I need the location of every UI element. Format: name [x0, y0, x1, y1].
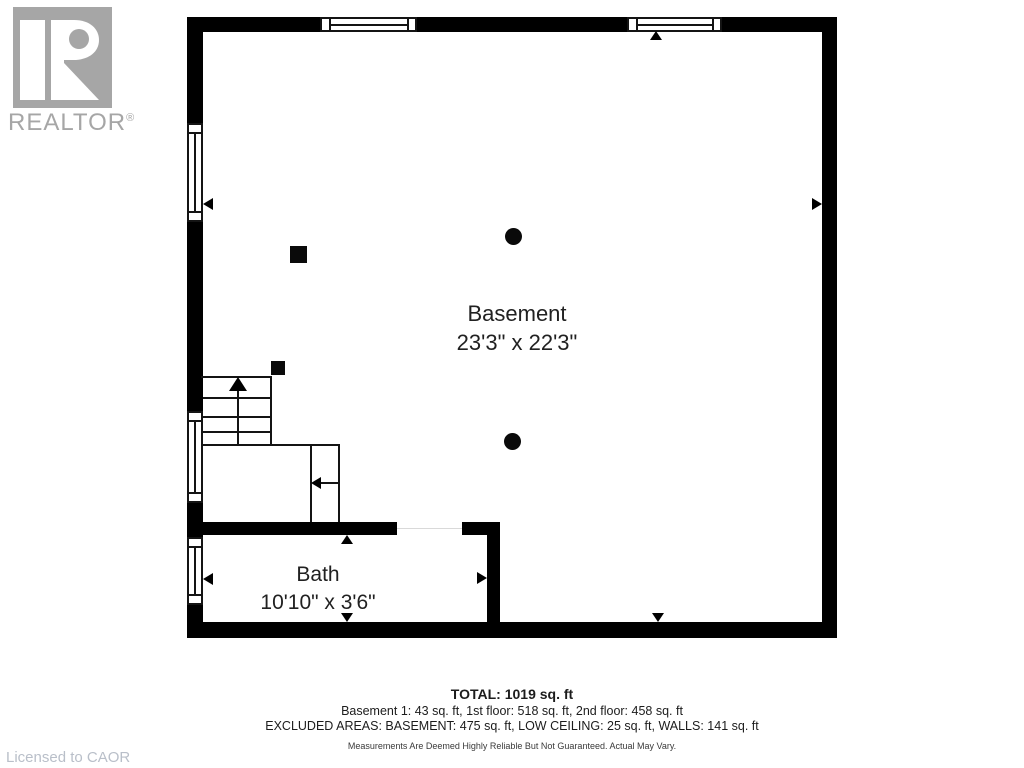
registered-trademark-symbol: ®	[126, 112, 135, 124]
stair-center-line	[237, 389, 239, 446]
total-area-text: TOTAL: 1019 sq. ft	[0, 686, 1024, 702]
landing-edge-top	[201, 444, 340, 446]
realtor-wordmark-text: REALTOR	[8, 109, 126, 136]
license-text: Licensed to CAOR	[6, 749, 130, 766]
dimension-arrow-up	[341, 535, 353, 544]
dimension-arrow-left	[203, 573, 213, 585]
bath-wall-top-left	[187, 522, 397, 535]
dimension-arrow-up	[650, 31, 662, 40]
square-post	[271, 361, 285, 375]
bath-name: Bath	[233, 561, 403, 589]
window-left-3	[187, 537, 203, 605]
stair-edge-right	[270, 376, 272, 446]
wall-right	[822, 17, 837, 638]
landing-door-line	[320, 482, 339, 484]
floorplan-page: REALTOR® Basement 23'3" x 22'3"	[0, 0, 1024, 768]
wall-top	[187, 17, 837, 32]
room-label-basement: Basement 23'3" x 22'3"	[412, 299, 622, 357]
window-left-1	[187, 123, 203, 222]
realtor-wordmark: REALTOR®	[8, 109, 138, 137]
realtor-logo	[13, 7, 112, 113]
floor-breakdown-text: Basement 1: 43 sq. ft, 1st floor: 518 sq…	[0, 704, 1024, 718]
bath-wall-right	[487, 522, 500, 637]
window-top-2	[627, 17, 722, 32]
realtor-r-icon	[13, 7, 112, 108]
disclaimer-text: Measurements Are Deemed Highly Reliable …	[0, 741, 1024, 751]
round-post	[505, 228, 522, 245]
window-left-2	[187, 411, 203, 503]
room-label-bath: Bath 10'10" x 3'6"	[233, 561, 403, 617]
round-post	[504, 433, 521, 450]
dimension-arrow-right	[812, 198, 822, 210]
landing-door-arrow	[311, 477, 321, 489]
window-top-1	[320, 17, 417, 32]
dimension-arrow-right	[477, 572, 487, 584]
stairs-up-arrow	[229, 377, 247, 391]
bath-dimensions: 10'10" x 3'6"	[233, 589, 403, 617]
dimension-arrow-left	[203, 198, 213, 210]
basement-name: Basement	[412, 299, 622, 328]
wall-bottom	[187, 622, 837, 638]
basement-dimensions: 23'3" x 22'3"	[412, 328, 622, 357]
square-post	[290, 246, 307, 263]
dimension-arrow-down	[652, 613, 664, 622]
excluded-areas-text: EXCLUDED AREAS: BASEMENT: 475 sq. ft, LO…	[0, 719, 1024, 733]
bath-door-opening	[397, 528, 462, 529]
